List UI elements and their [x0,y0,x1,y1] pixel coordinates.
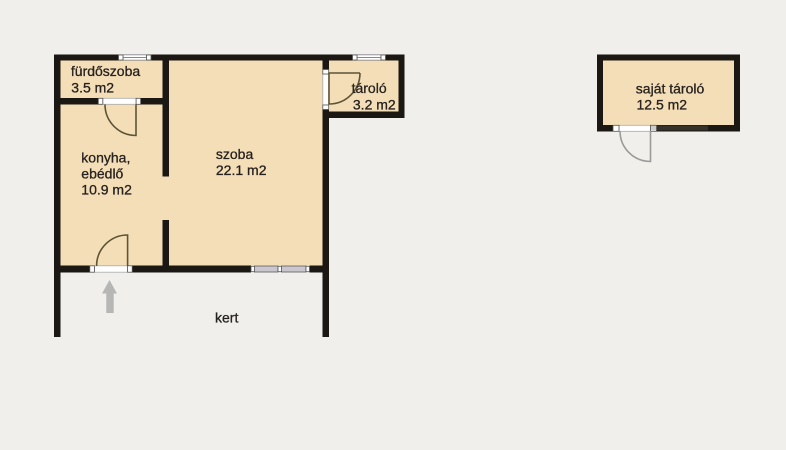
svg-text:ebédlő: ebédlő [81,165,123,181]
svg-text:10.9 m2: 10.9 m2 [81,181,132,197]
svg-text:3.5 m2: 3.5 m2 [71,79,114,95]
svg-text:tároló: tároló [352,80,387,96]
svg-text:szoba: szoba [216,146,254,162]
svg-text:fürdőszoba: fürdőszoba [71,63,140,79]
svg-text:3.2 m2: 3.2 m2 [353,97,396,113]
svg-text:saját tároló: saját tároló [636,80,705,96]
svg-text:12.5 m2: 12.5 m2 [637,96,688,112]
svg-text:22.1 m2: 22.1 m2 [216,162,267,178]
svg-text:konyha,: konyha, [81,149,130,165]
svg-text:kert: kert [215,310,238,326]
